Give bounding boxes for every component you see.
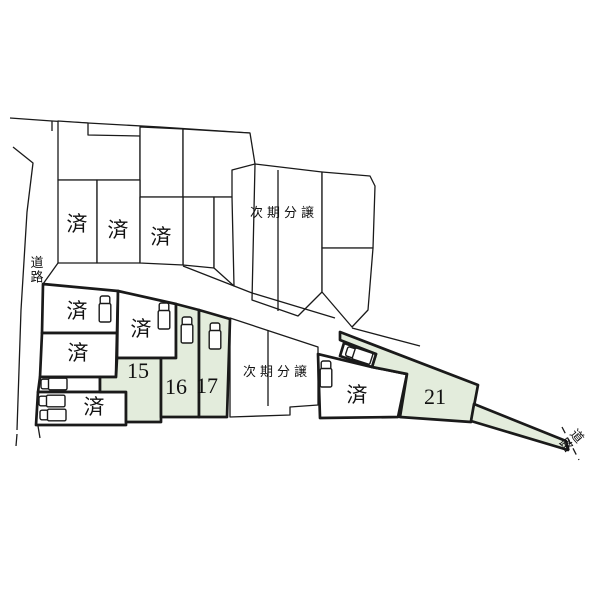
lot-sold-back-3-label: 済 bbox=[151, 225, 172, 249]
back-lot-unlabeled-3 bbox=[183, 129, 255, 197]
lot-sold-front-4-label: 済 bbox=[84, 395, 105, 419]
future-phase-top-label: 次期分譲 bbox=[250, 205, 318, 221]
back-lot-unlabeled-1 bbox=[58, 121, 140, 180]
access-road-strip bbox=[471, 404, 568, 450]
car-icon bbox=[320, 361, 332, 387]
car-icon bbox=[99, 296, 111, 322]
lot-sold-front-5-label: 済 bbox=[347, 383, 368, 407]
car-icon bbox=[158, 303, 170, 329]
lot-15-number: 15 bbox=[127, 358, 149, 383]
car-icon bbox=[39, 395, 65, 407]
lot-future-phase-top bbox=[252, 164, 322, 316]
car-icon bbox=[41, 378, 67, 390]
road-left-label-char1: 道 bbox=[30, 256, 43, 271]
road-right-label: 道 路 bbox=[556, 427, 587, 456]
lot-sold-front-2-label: 済 bbox=[68, 341, 89, 365]
site-plan: 済 済 済 次期分譲 次期分譲 済 済 済 済 済 15 16 17 21 道 … bbox=[0, 0, 600, 599]
lot-sold-front-3-label: 済 bbox=[131, 317, 152, 341]
back-lot-unlabeled-6 bbox=[322, 172, 375, 248]
lot-16-number: 16 bbox=[165, 374, 187, 399]
road-left-outer-edge-dash bbox=[16, 434, 17, 446]
car-icon bbox=[209, 323, 221, 349]
car-icon bbox=[181, 317, 193, 343]
back-lot-unlabeled-4 bbox=[183, 197, 214, 268]
lot-17-number: 17 bbox=[196, 373, 218, 398]
future-phase-bottom-label: 次期分譲 bbox=[243, 364, 311, 380]
back-lot-unlabeled-5 bbox=[214, 197, 234, 286]
back-lot-unlabeled-7 bbox=[322, 248, 373, 327]
lot-sold-back-2-label: 済 bbox=[108, 218, 129, 242]
lot-21-number: 21 bbox=[424, 384, 446, 409]
road-left-label-char2: 路 bbox=[30, 270, 43, 286]
site-plan-canvas: 済 済 済 次期分譲 次期分譲 済 済 済 済 済 15 16 17 21 道 … bbox=[0, 0, 600, 599]
road-left-inner-edge bbox=[43, 263, 58, 284]
lot-sold-back-1-label: 済 bbox=[67, 212, 88, 236]
back-lot-unlabeled-2 bbox=[140, 127, 183, 197]
car-icon bbox=[40, 409, 66, 421]
south-boundary-tick bbox=[38, 426, 40, 438]
road-left-outer-edge bbox=[13, 147, 33, 430]
lot-sold-front-1-label: 済 bbox=[67, 299, 88, 323]
